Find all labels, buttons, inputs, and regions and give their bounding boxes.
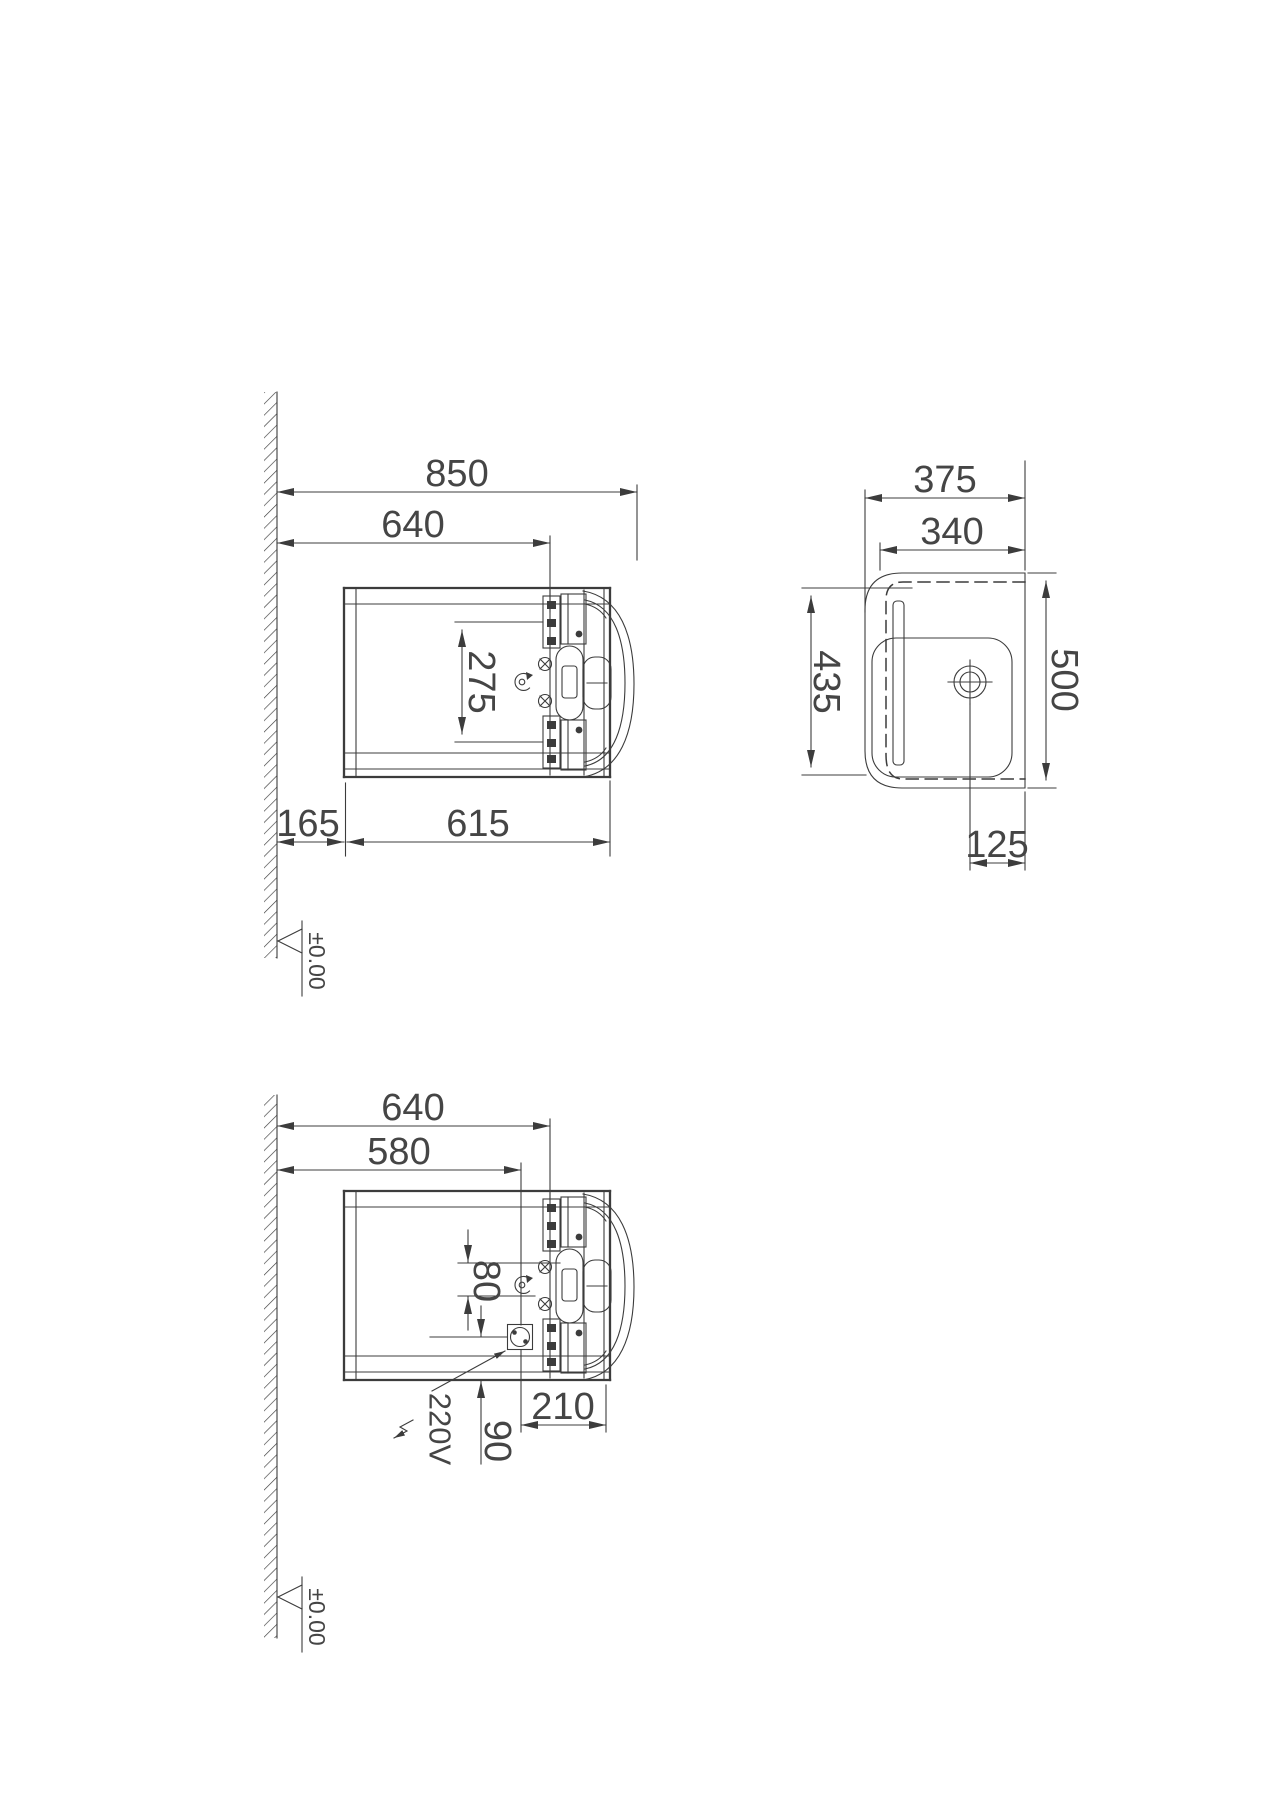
dim-90: 90 bbox=[476, 1306, 518, 1464]
socket-box bbox=[508, 1325, 533, 1350]
dim-500-label: 500 bbox=[1043, 648, 1085, 711]
dim-275: 275 bbox=[455, 622, 543, 742]
level-marker-v3: ±0.00 bbox=[278, 1577, 330, 1652]
dim-435: 435 bbox=[802, 588, 912, 775]
dim-640-v1: 640 bbox=[277, 504, 550, 612]
dim-125: 125 bbox=[965, 792, 1028, 870]
voltage-label: 220V bbox=[423, 1393, 458, 1466]
dim-80-label: 80 bbox=[465, 1260, 507, 1302]
dim-125-label: 125 bbox=[965, 824, 1028, 866]
dim-210-label: 210 bbox=[531, 1386, 594, 1428]
dim-90-label: 90 bbox=[476, 1420, 518, 1462]
lightning-icon bbox=[394, 1420, 413, 1438]
drawing-sheet: 850 640 275 165 615 ±0.00 bbox=[0, 0, 1280, 1817]
dim-500: 500 bbox=[1028, 573, 1085, 788]
view3-lower-section: 640 580 80 90 bbox=[264, 1087, 634, 1652]
view2-plan: 375 340 435 500 125 bbox=[802, 459, 1085, 870]
dim-340-label: 340 bbox=[920, 511, 983, 553]
dim-165-label: 165 bbox=[276, 803, 339, 845]
bowl-hidden-outline bbox=[886, 582, 1025, 779]
wall-hatch-v1 bbox=[264, 392, 277, 958]
dim-435-label: 435 bbox=[805, 650, 847, 713]
dim-275-label: 275 bbox=[460, 650, 502, 713]
dim-640-v3-label: 640 bbox=[381, 1087, 444, 1129]
view1-upper-section: 850 640 275 165 615 ±0.00 bbox=[264, 392, 637, 996]
wall-hatch-v3 bbox=[264, 1095, 277, 1638]
dim-580-label: 580 bbox=[367, 1131, 430, 1173]
dim-165-615: 165 615 bbox=[276, 781, 610, 856]
level-label-v3: ±0.00 bbox=[304, 1588, 330, 1645]
level-label-v1: ±0.00 bbox=[304, 932, 330, 989]
dim-615-label: 615 bbox=[446, 803, 509, 845]
wall-section-v3 bbox=[264, 1095, 277, 1638]
dim-850-label: 850 bbox=[425, 453, 488, 495]
level-marker-v1: ±0.00 bbox=[278, 921, 330, 996]
technical-drawing-canvas: 850 640 275 165 615 ±0.00 bbox=[0, 0, 1280, 1817]
dim-375-label: 375 bbox=[913, 459, 976, 501]
dim-640-v1-label: 640 bbox=[381, 504, 444, 546]
mounting-slot bbox=[893, 601, 904, 765]
bowl-outer-shell bbox=[865, 573, 1025, 788]
dim-850: 850 bbox=[277, 453, 637, 560]
dim-80: 80 bbox=[458, 1230, 560, 1330]
dim-340: 340 bbox=[880, 511, 1025, 570]
wall-section-v1 bbox=[264, 392, 277, 958]
